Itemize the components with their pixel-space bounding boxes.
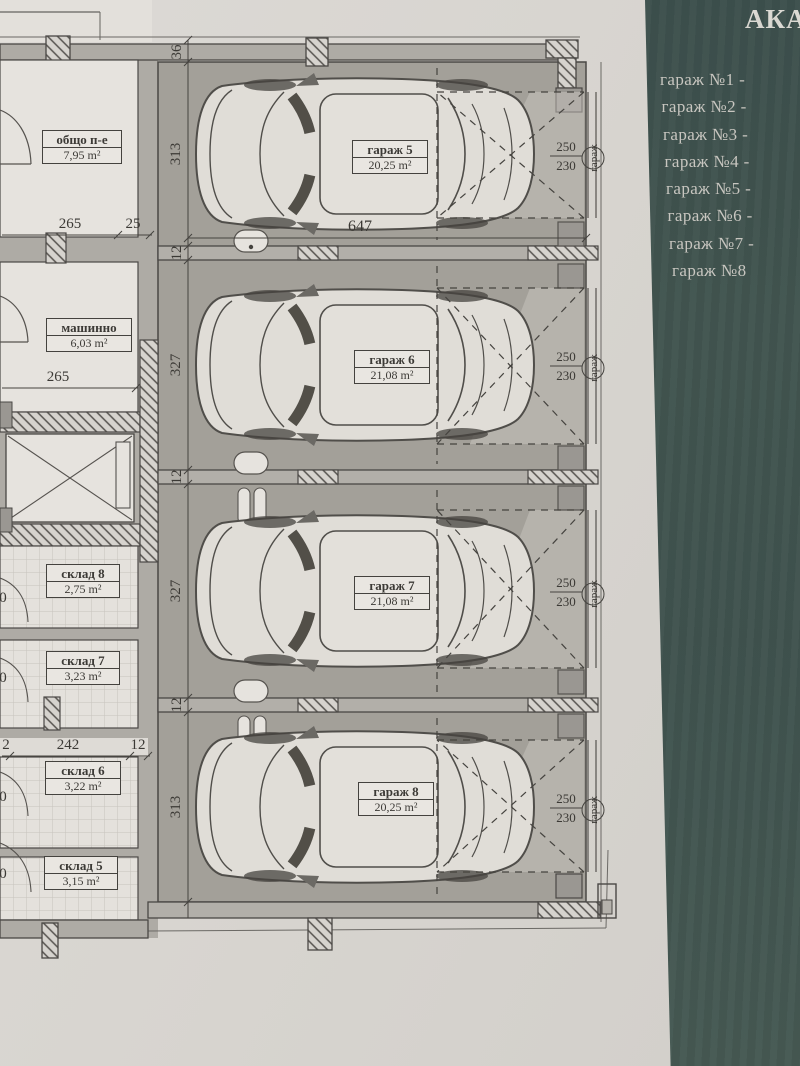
dim-313-g8: 313 [168,796,184,819]
dim-2-sk: 2 [2,737,10,753]
door-w-g6: 250 [556,349,576,364]
room-label-mashinno: машинно 6,03 m² [46,318,132,352]
room-name: общо п-е [43,131,121,147]
room-name: склад 8 [47,565,119,581]
dim-cut0-c: 0 [0,789,7,805]
room-area: 2,75 m² [47,581,119,597]
dim-313-g5: 313 [168,143,184,166]
room-label-sklad8: склад 8 2,75 m² [46,564,120,598]
room-area: 3,23 m² [47,668,119,684]
garage-area: 20,25 m² [359,799,433,815]
garage-name: гараж 7 [355,577,429,593]
garage-label-6: гараж 6 21,08 m² [354,350,430,384]
dim-327-g7: 327 [168,579,184,602]
room-name: склад 7 [47,652,119,668]
door-h-g7: 230 [556,594,576,609]
garage-list-item: гараж №4 - [665,148,755,175]
door-w-g8: 250 [556,791,576,806]
room-label-sklad6: склад 6 3,22 m² [45,761,121,795]
garage-area: 20,25 m² [353,157,427,173]
dim-327-g6: 327 [168,353,184,376]
door-label-g8: гараж [588,796,600,824]
garage-list-item: гараж №1 - [660,66,754,93]
dim-647: 647 [348,218,372,235]
garage-label-5: гараж 5 20,25 m² [352,140,428,174]
dim-12-gap3: 12 [169,698,185,713]
room-label-sklad7: склад 7 3,23 m² [46,651,120,685]
dim-265-r2: 265 [47,369,70,385]
garage-name: гараж 5 [353,141,427,157]
garage-label-8: гараж 8 20,25 m² [358,782,434,816]
dim-12-gap2: 12 [169,470,185,485]
door-h-g6: 230 [556,368,576,383]
dim-36: 36 [169,44,185,60]
garage-list-item: гараж №3 - [663,121,754,148]
dim-12-gap1: 12 [169,246,185,261]
panel-title: АКА [745,4,800,35]
side-panel: АКА гараж №1 - гараж №2 - гараж №3 - гар… [645,0,800,1066]
room-name: склад 5 [45,857,117,873]
dim-25-r1: 25 [126,216,141,232]
dim-12-sk: 12 [131,737,146,753]
room-area: 7,95 m² [43,147,121,163]
garage-list-item: гараж №2 - [662,93,755,120]
door-w-g5: 250 [556,139,576,154]
garage-area: 21,08 m² [355,367,429,383]
dim-cut0-b: 0 [0,670,7,686]
room-area: 6,03 m² [47,335,131,351]
room-name: машинно [47,319,131,335]
room-area: 3,22 m² [46,778,120,794]
garage-list-item: гараж №8 [672,257,754,284]
door-h-g8: 230 [556,810,576,825]
garage-price-list: гараж №1 - гараж №2 - гараж №3 - гараж №… [660,66,754,284]
dim-cut0-a: 0 [0,590,7,606]
garage-list-item: гараж №6 - [668,202,755,229]
door-w-g7: 250 [556,575,576,590]
dim-265-r1: 265 [59,216,82,232]
dim-cut0-d: 0 [0,866,7,882]
garage-name: гараж 6 [355,351,429,367]
door-label-g6: гараж [588,354,600,382]
door-h-g5: 230 [556,158,576,173]
dim-242-sk: 242 [57,737,80,753]
floor-plan-photo: 36 313 12 327 12 327 12 313 647 265 25 2… [0,0,800,1066]
garage-list-item: гараж №7 - [669,230,754,257]
room-name: склад 6 [46,762,120,778]
garage-name: гараж 8 [359,783,433,799]
room-label-sklad5: склад 5 3,15 m² [44,856,118,890]
garage-area: 21,08 m² [355,593,429,609]
garage-label-7: гараж 7 21,08 m² [354,576,430,610]
door-label-g7: гараж [588,580,600,608]
room-area: 3,15 m² [45,873,117,889]
door-label-g5: гараж [588,144,600,172]
garage-list-item: гараж №5 - [666,175,754,202]
room-label-obsho: общо п-е 7,95 m² [42,130,122,164]
